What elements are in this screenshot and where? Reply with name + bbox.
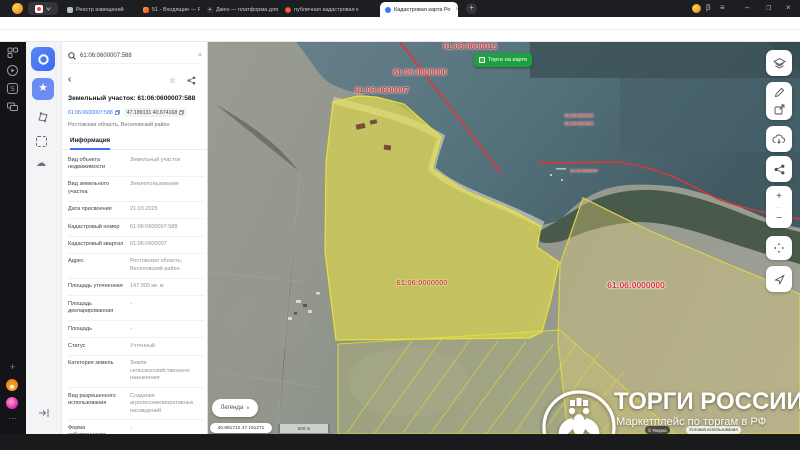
field-value: Земли сельскохозяйственного назначения [130, 360, 204, 382]
cloud-icon[interactable]: ☁ [36, 158, 46, 170]
layers-button[interactable] [766, 50, 792, 76]
search-bar[interactable]: 61:06:0600007:588 × [68, 48, 202, 64]
collections-icon[interactable] [6, 46, 19, 59]
info-field-row: Кадастровый номер 61:06:0600007:588 [68, 219, 204, 236]
info-field-row: Статус Учтенный [68, 338, 204, 355]
cadastral-number-link[interactable]: 61:06:0600007:588 [68, 110, 120, 116]
address-bar: ← map.ru Кадастровая карта России онлайн… [0, 17, 800, 30]
cadastral-label-left: 61:06:0600007 [322, 86, 442, 95]
parcel-label-right: 61:06:0000000 [580, 280, 692, 290]
tab-reestr[interactable]: Реестр извещений [62, 2, 136, 17]
parcel-title: Земельный участок: 61:06:0600007:588 [68, 95, 206, 102]
panel-tabs: Информация [62, 132, 208, 150]
export-icon [774, 104, 785, 115]
share-map-button[interactable] [766, 156, 792, 182]
map-site-icon [385, 7, 391, 13]
screens-icon[interactable] [6, 100, 19, 113]
layers-icon [773, 57, 786, 70]
app-toolbar-rail: ★ ☁ [26, 42, 62, 434]
field-label: Дата присвоения [68, 206, 124, 213]
field-label: Статус [68, 343, 124, 350]
favorites-tool-button[interactable]: ★ [32, 78, 54, 100]
cloud-download-button[interactable] [766, 126, 792, 152]
close-tab-icon[interactable]: × [455, 6, 458, 13]
zoom-out-button[interactable]: − [776, 207, 782, 228]
plus-icon: + [207, 7, 213, 13]
zoom-control: + − [766, 186, 792, 228]
cloud-download-icon [772, 134, 786, 145]
pan-mode-button[interactable] [766, 236, 792, 260]
info-field-row: Вид объекта недвижимости Земельный участ… [68, 152, 204, 177]
info-field-row: Форма собственности - [68, 420, 204, 434]
cursor-coordinates: 40.681712 47.191271 [210, 423, 272, 433]
cadastral-label-small-2: 61:06:0000000 [556, 121, 602, 126]
info-field-row: Вид земельного участка Землепользование [68, 177, 204, 202]
field-value: 61:06:0600007:588 [130, 224, 177, 231]
incognito-icon: β [706, 3, 711, 13]
field-label: Форма собственности [68, 425, 124, 434]
bookmarks-bar: ДЕЛО-WEB Торги Единая Сервисн мк Имущест… [0, 30, 800, 42]
clear-search-icon[interactable]: × [198, 52, 202, 59]
field-value: 61:06:0600007 [130, 241, 167, 248]
copy-icon[interactable] [115, 110, 120, 115]
zoom-in-button[interactable]: + [776, 186, 782, 207]
satellite-map [208, 42, 800, 434]
tab-pkk[interactable]: публичная кадастровая к [280, 2, 378, 17]
info-field-row: Площадь - [68, 321, 204, 338]
share-icon[interactable] [187, 76, 196, 85]
info-field-row: Площадь декларированная - [68, 296, 204, 321]
maximize-button[interactable]: ❐ [766, 4, 771, 14]
map-canvas[interactable]: 61:06:0600015 61:06:0000000 61:06:060000… [208, 42, 800, 434]
more-apps-icon[interactable]: ⋯ [6, 414, 19, 427]
browser-side-rail: S + ⋯ [0, 42, 26, 434]
coordinates-chip[interactable]: 47.189131 40.674168 [124, 108, 188, 117]
chevron-down-icon [46, 7, 51, 11]
checkbox-icon[interactable] [479, 57, 485, 63]
field-label: Кадастровый квартал [68, 241, 124, 248]
field-value: - [130, 425, 132, 434]
cadastral-label-upper: 61:06:0000000 [360, 68, 480, 77]
field-label: Вид объекта недвижимости [68, 157, 124, 172]
field-value: Ростовская область, Веселовский район [130, 258, 204, 273]
search-icon [68, 52, 76, 60]
browser-menu-icon[interactable]: ≡ [720, 3, 725, 13]
add-panel-icon[interactable]: + [6, 362, 19, 375]
page-icon [67, 7, 73, 13]
tab-mail[interactable]: 51 - Входящие — Яндекс П [138, 2, 200, 17]
tab-active-map[interactable]: Кадастровая карта Ро × [380, 2, 458, 17]
copy-icon[interactable] [179, 110, 184, 115]
field-value: 147 000 кв. м [130, 283, 164, 290]
field-value: Земельный участок [130, 157, 180, 172]
field-label: Вид разрешенного использования [68, 393, 124, 415]
info-field-row: Адрес Ростовская область, Веселовский ра… [68, 254, 204, 279]
taskbar: O Y W ∧ РУС 10:50 29.08.2025 [0, 434, 800, 450]
panel-controls-row: ‹ ☆ [68, 70, 202, 90]
info-field-row: Вид разрешенного использования Создание … [68, 388, 204, 420]
my-location-button[interactable] [766, 266, 792, 292]
video-icon[interactable] [6, 64, 19, 77]
close-window-button[interactable]: × [786, 3, 791, 13]
info-field-row: Кадастровый квартал 61:06:0600007 [68, 237, 204, 254]
info-field-row: Дата присвоения 21.03.2025 [68, 202, 204, 219]
torgi-rossii-emblem [539, 387, 619, 434]
cadastral-label-small-3: 61:06:0600007 [560, 168, 608, 173]
parcel-label-center: 61:06:0000000 [366, 278, 478, 287]
select-area-icon[interactable] [36, 136, 47, 147]
info-field-row: Площадь уточненная 147 000 кв. м [68, 279, 204, 296]
scale-bar: 500 m [278, 424, 330, 433]
field-value: Землепользование [130, 181, 179, 196]
field-value: - [130, 301, 132, 316]
legend-button[interactable]: Легенда ∧ [212, 399, 258, 417]
field-label: Категория земель [68, 360, 124, 382]
app-logo[interactable] [31, 47, 55, 71]
favorite-star-icon[interactable]: ☆ [169, 76, 176, 85]
sync-avatar[interactable] [692, 4, 701, 13]
pkk-icon [285, 7, 291, 13]
draw-tools-button[interactable] [766, 82, 792, 120]
profile-avatar[interactable] [12, 3, 23, 14]
parcel-info-panel: 61:06:0600007:588 × ‹ ☆ Земельный участо… [62, 42, 208, 434]
field-label: Площадь декларированная [68, 301, 124, 316]
yandex-music-icon[interactable] [6, 379, 18, 391]
torgi-on-map-button[interactable]: Торги на карте [474, 53, 532, 67]
field-label: Площадь [68, 326, 124, 333]
parcel-chips: 61:06:0600007:588 47.189131 40.674168 [68, 108, 187, 117]
tab-gin[interactable]: + Джен — платформа для п [202, 2, 278, 17]
watermark-subtitle: Маркетплейс по торгам в РФ [616, 416, 766, 428]
mail-icon [143, 7, 149, 13]
info-field-row: Категория земель Земли сельскохозяйствен… [68, 356, 204, 388]
share-icon [774, 164, 785, 175]
field-label: Кадастровый номер [68, 224, 124, 231]
field-value: 21.03.2025 [130, 206, 158, 213]
search-input[interactable]: 61:06:0600007:588 [80, 53, 194, 59]
screen: Реестр извещений 51 - Входящие — Яндекс … [0, 0, 800, 450]
info-fields: Вид объекта недвижимости Земельный участ… [68, 152, 204, 434]
browser-logo-icon [35, 5, 43, 13]
field-value: Создание агролесомелиоративных насаждени… [130, 393, 204, 415]
field-value: Учтенный [130, 343, 155, 350]
svg-text:S: S [10, 86, 15, 93]
location-arrow-icon [774, 274, 785, 285]
watermark-title: ТОРГИ РОССИИ [614, 388, 800, 416]
tab-group-button[interactable] [28, 2, 58, 15]
browser-tab-strip: Реестр извещений 51 - Входящие — Яндекс … [0, 0, 800, 17]
tab-information[interactable]: Информация [70, 137, 110, 150]
field-label: Адрес [68, 258, 124, 273]
field-label: Площадь уточненная [68, 283, 124, 290]
pencil-icon [774, 87, 785, 98]
cadastral-label-small-1: 61:06:0600015 [556, 113, 602, 118]
cadastral-label-top: 61:06:0600015 [410, 42, 530, 51]
chevron-up-icon: ∧ [246, 405, 249, 411]
measure-area-icon[interactable] [36, 110, 50, 124]
new-tab-button[interactable]: + [466, 3, 477, 14]
field-label: Вид земельного участка [68, 181, 124, 196]
back-button[interactable]: ‹ [68, 75, 71, 85]
collapse-panel-icon[interactable] [38, 408, 50, 418]
pan-icon [773, 242, 785, 254]
pink-app-icon[interactable] [6, 397, 18, 409]
s-service-icon[interactable]: S [6, 82, 19, 95]
field-value: - [130, 326, 132, 333]
parcel-location: Ростовская область, Веселовский район [68, 122, 169, 128]
minimize-button[interactable]: – [745, 3, 749, 13]
